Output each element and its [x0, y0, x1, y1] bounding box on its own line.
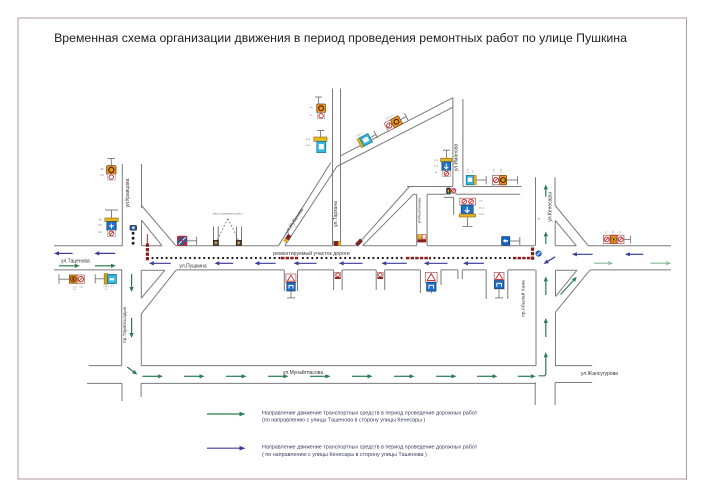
- svg-text:3.24: 3.24: [79, 286, 84, 288]
- svg-text:3.24.1: 3.24.1: [478, 214, 485, 216]
- svg-text:3.1: 3.1: [309, 115, 313, 117]
- svg-text:пр.Тауелсыздык: пр.Тауелсыздык: [122, 306, 128, 343]
- svg-text:ремонтируемый участок дороги: ремонтируемый участок дороги: [273, 250, 350, 257]
- svg-text:м: м: [538, 218, 540, 221]
- svg-text:5.15.2: 5.15.2: [478, 208, 485, 210]
- svg-text:5.34.1: 5.34.1: [103, 286, 109, 288]
- svg-text:1.25: 1.25: [478, 201, 483, 203]
- svg-text:5.34: 5.34: [306, 145, 311, 147]
- svg-text:3.24: 3.24: [501, 168, 503, 173]
- svg-text:ул.Пушкина: ул.Пушкина: [179, 263, 207, 269]
- svg-text:(по направлению с улицы Ташено: (по направлению с улицы Ташенова в сторо…: [262, 418, 426, 424]
- svg-text:8.1: 8.1: [73, 289, 77, 291]
- svg-text:ул.Решетникова: ул.Решетникова: [418, 198, 422, 224]
- svg-text:8.2: 8.2: [105, 289, 109, 291]
- svg-text:4.8: 4.8: [613, 231, 615, 234]
- svg-text:40: 40: [99, 231, 102, 234]
- svg-text:ул.Иманова: ул.Иманова: [454, 144, 460, 172]
- svg-text:8.1: 8.1: [473, 169, 475, 173]
- svg-text:Временная схема организации дв: Временная схема организации движения в п…: [54, 31, 627, 45]
- svg-text:1.25: 1.25: [494, 168, 496, 173]
- svg-text:( по направлению с улицы Кенес: ( по направлению с улицы Кенесары в стор…: [262, 452, 427, 458]
- svg-text:4.8: 4.8: [309, 107, 313, 109]
- svg-text:3.1: 3.1: [100, 174, 104, 177]
- svg-text:пр.Абылай Хана: пр.Абылай Хана: [520, 280, 527, 317]
- svg-text:ул.Кенесары: ул.Кенесары: [548, 192, 554, 222]
- svg-text:3.1: 3.1: [620, 231, 622, 234]
- svg-text:-30: -30: [98, 219, 102, 222]
- svg-text:8.1: 8.1: [111, 286, 115, 288]
- svg-text:место проведения работ: место проведения работ: [213, 211, 244, 215]
- svg-text:8.23: 8.23: [306, 139, 311, 141]
- svg-text:ул.Таценова: ул.Таценова: [61, 258, 90, 264]
- svg-text:3.1: 3.1: [606, 231, 608, 234]
- svg-text:Направление движение транспорт: Направление движение транспортных средст…: [262, 445, 478, 451]
- svg-text:1.25: 1.25: [73, 286, 78, 288]
- svg-text:ул.Жансугурова: ул.Жансугурова: [581, 371, 618, 377]
- svg-text:1.25: 1.25: [434, 160, 439, 162]
- svg-text:ул.Кравцова: ул.Кравцова: [125, 178, 131, 207]
- svg-text:40: 40: [435, 172, 438, 174]
- svg-text:ул.Тархана: ул.Тархана: [333, 201, 339, 227]
- svg-text:Направление движение транспорт: Направление движение транспортных средст…: [262, 410, 478, 416]
- svg-text:2.16: 2.16: [434, 166, 439, 168]
- svg-text:2.6: 2.6: [98, 224, 102, 227]
- svg-text:5.34: 5.34: [468, 168, 470, 173]
- svg-text:40: 40: [101, 168, 104, 171]
- svg-text:ул.Мунайтпасова: ул.Мунайтпасова: [283, 369, 323, 376]
